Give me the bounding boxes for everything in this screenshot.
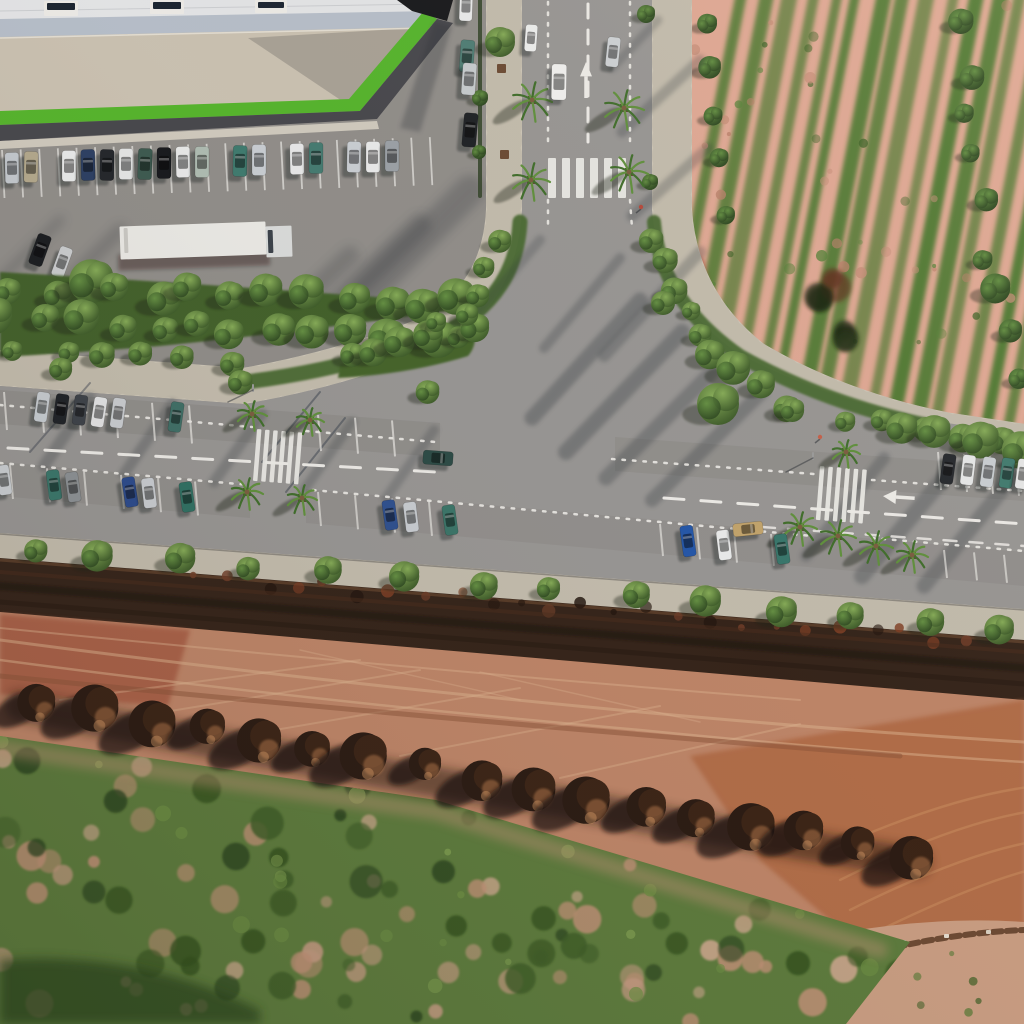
aerial-scene xyxy=(0,0,1024,1024)
aerial-render-viewport xyxy=(0,0,1024,1024)
sunlight-overlay xyxy=(0,0,1024,1024)
